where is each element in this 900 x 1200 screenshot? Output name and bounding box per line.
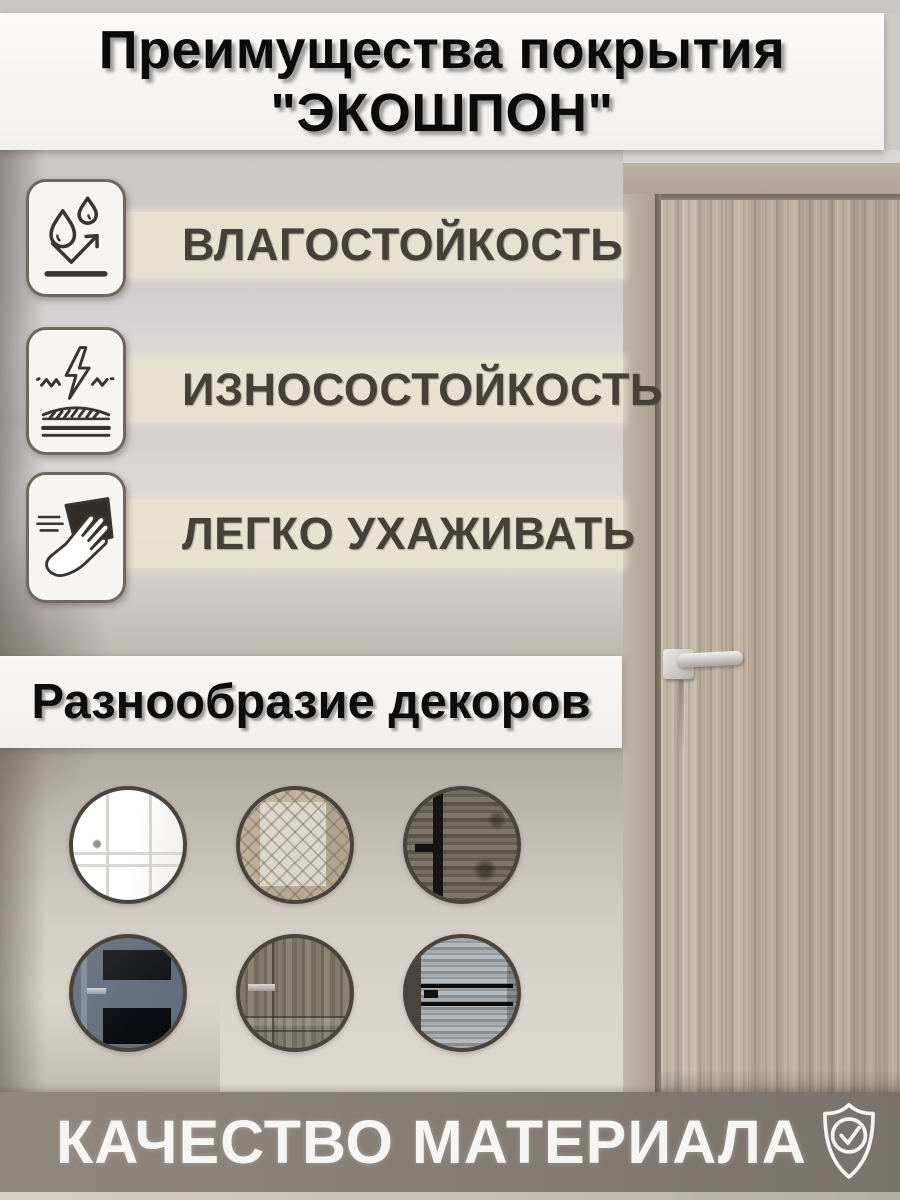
decor-circle-white-classic-door <box>69 786 187 904</box>
door-handle-shadow <box>679 680 684 752</box>
decor-circle-blue-grey-glass-door <box>69 934 187 1052</box>
wear-resistance-icon <box>35 341 117 441</box>
quality-banner: КАЧЕСТВО МАТЕРИАЛА <box>0 1092 900 1192</box>
floor-strip <box>0 1192 900 1200</box>
decor-circle-grey-classic-panel-door <box>236 934 354 1052</box>
door-frame-top <box>623 163 900 194</box>
feature-strip-moisture: ВЛАГОСТОЙКОСТЬ <box>120 212 623 278</box>
door-frame-left <box>623 163 657 1092</box>
decor-circle-glass-insert-door <box>236 786 354 904</box>
feature-label-care: ЛЕГКО УХАЖИВАТЬ <box>182 508 635 560</box>
feature-label-wear: ИЗНОСОСТОЙКОСТЬ <box>182 364 663 416</box>
decor-circle-light-grey-plank-door <box>403 934 521 1052</box>
feature-icon-box-wear <box>26 327 126 455</box>
feature-strip-care: ЛЕГКО УХАЖИВАТЬ <box>120 500 623 568</box>
decors-banner-title: Разнообразие декоров <box>31 674 590 730</box>
water-drops-icon <box>37 192 115 284</box>
page-title-line2: "ЭКОШПОН" <box>270 82 613 145</box>
feature-icon-box-moisture <box>26 179 126 297</box>
quality-banner-label: КАЧЕСТВО МАТЕРИАЛА <box>56 1107 807 1177</box>
shield-check-icon <box>814 1097 884 1187</box>
title-banner: Преимущества покрытия "ЭКОШПОН" <box>0 13 884 150</box>
decor-circle-dark-rustic-door <box>403 786 521 904</box>
easy-care-icon <box>34 486 118 590</box>
infographic-poster: Преимущества покрытия "ЭКОШПОН" ВЛАГОСТО… <box>0 0 900 1200</box>
feature-label-moisture: ВЛАГОСТОЙКОСТЬ <box>182 219 623 271</box>
background-top-strip <box>0 0 900 13</box>
decors-banner: Разнообразие декоров <box>0 656 622 748</box>
door-leaf-photo <box>661 200 900 1092</box>
feature-icon-box-care <box>26 472 126 603</box>
feature-strip-wear: ИЗНОСОСТОЙКОСТЬ <box>120 357 623 423</box>
door-bottom-shadow <box>661 1070 900 1092</box>
wall-above-door <box>623 150 900 164</box>
page-title-line1: Преимущества покрытия <box>99 19 786 82</box>
